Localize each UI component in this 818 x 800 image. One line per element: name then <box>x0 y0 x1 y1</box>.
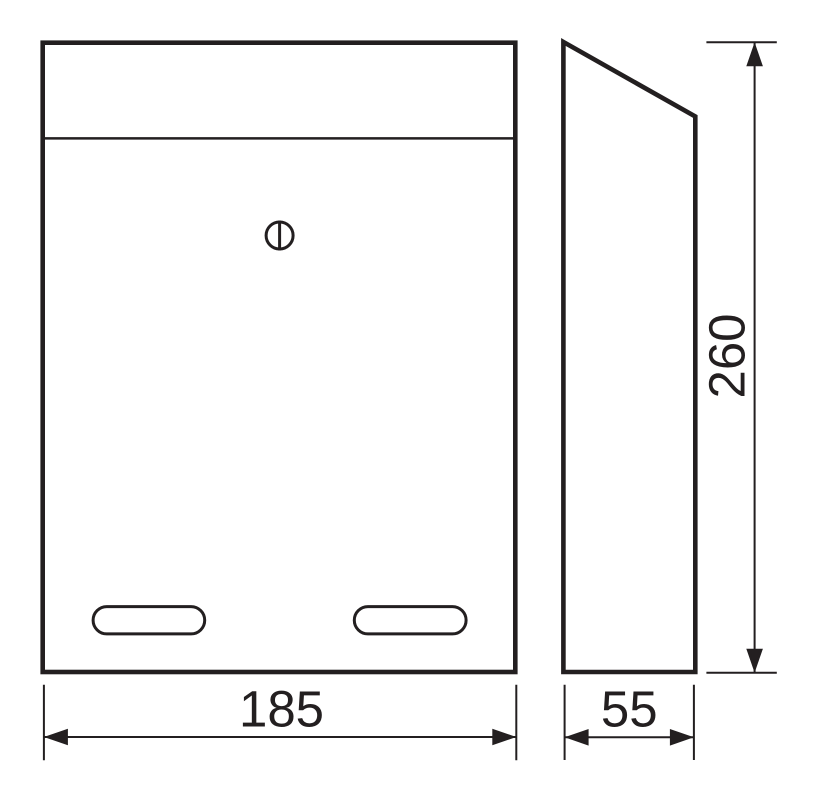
svg-text:55: 55 <box>601 681 658 738</box>
svg-text:260: 260 <box>699 313 756 398</box>
svg-text:185: 185 <box>239 681 324 738</box>
